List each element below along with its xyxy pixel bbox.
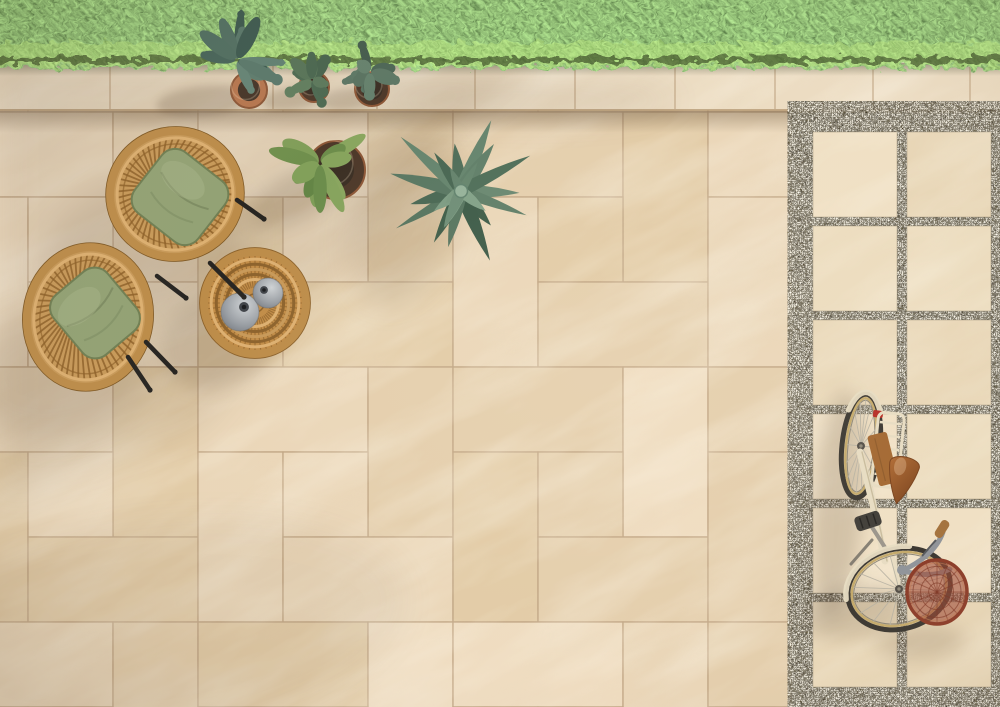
patio-scene-canvas xyxy=(0,0,1000,707)
light-vignette xyxy=(0,0,1000,707)
patio-scene xyxy=(0,0,1000,707)
